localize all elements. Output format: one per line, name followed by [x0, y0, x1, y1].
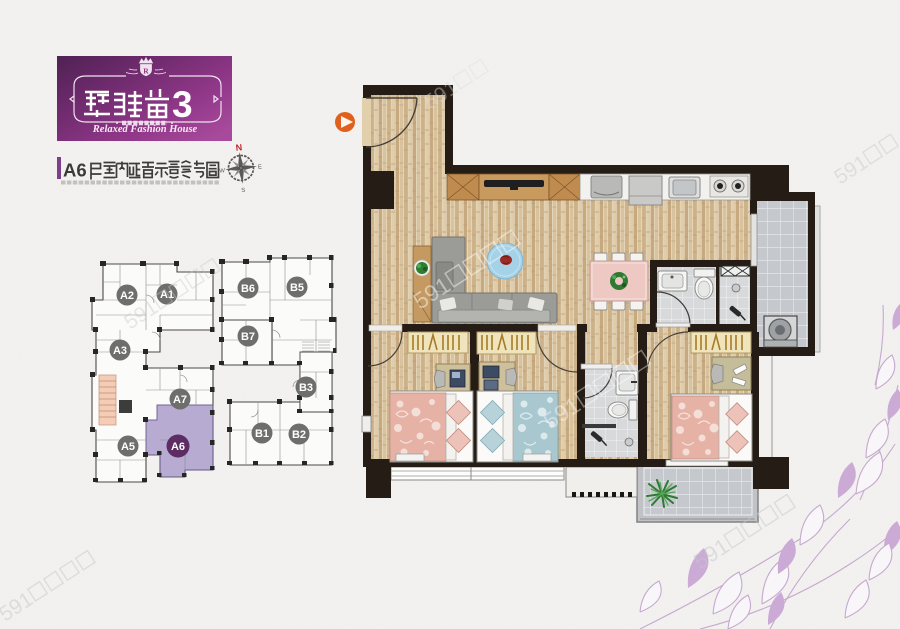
- svg-text:E: E: [258, 164, 263, 170]
- svg-text:3: 3: [172, 84, 193, 125]
- svg-text:Relaxed Fashion House: Relaxed Fashion House: [92, 124, 198, 135]
- svg-text:591: 591: [0, 588, 37, 626]
- svg-text:S: S: [241, 188, 246, 194]
- svg-text:N: N: [235, 142, 243, 153]
- svg-text:R: R: [143, 67, 149, 76]
- svg-text:W: W: [219, 168, 226, 175]
- svg-text:A6: A6: [63, 160, 87, 181]
